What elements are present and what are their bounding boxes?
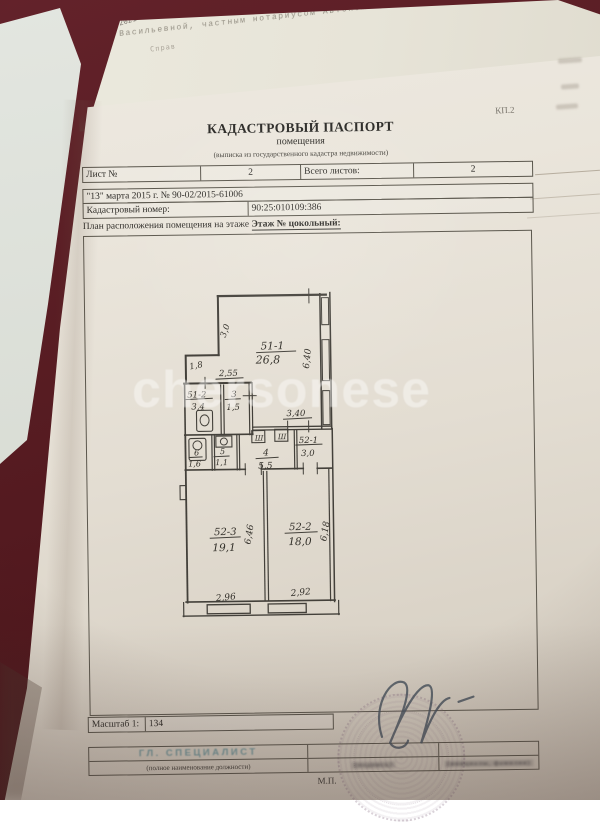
position-note: (полное наименование должности): [146, 762, 250, 771]
wardrobe-mark: Ш: [277, 432, 287, 441]
sheet-label: Лист №: [83, 166, 201, 182]
dim-2-92: 2,92: [289, 587, 311, 599]
room-area-52-2: 18,0: [288, 536, 312, 548]
room-area-52-1: 3,0: [301, 449, 315, 459]
dim-6-46: 6,46: [243, 524, 256, 546]
handwritten-signature: [343, 657, 495, 769]
dim-2-96: 2,96: [214, 592, 236, 604]
room-label-52-3: 52-3: [214, 527, 237, 538]
photo-of-cadastral-passport: { "photo": { "watermark": "chersonese", …: [0, 0, 600, 800]
room-area-6: 1,6: [188, 459, 201, 468]
room-label-4: 4: [262, 448, 269, 458]
cadastral-value: 90:25:010109:386: [249, 201, 325, 216]
dim-6-18: 6,18: [319, 520, 332, 542]
room-label-5: 5: [220, 447, 225, 456]
seal-mark: М.П.: [318, 776, 337, 786]
plan-heading: План расположения помещения на этаже Эта…: [83, 218, 341, 232]
total-sheets-label: Всего листов:: [301, 163, 414, 179]
total-sheets-value: 2: [414, 162, 532, 178]
sheet-number-table: Лист № 2 Всего листов: 2: [82, 161, 533, 183]
scale-label: Масштаб 1:: [89, 717, 146, 732]
room-label-52-2: 52-2: [289, 522, 312, 533]
floor-plan-drawing: 51-1 26,8 6,40 3,0 1,8 2,55 51-2 3,4 3 1…: [84, 231, 538, 715]
room-area-5: 1,1: [215, 458, 228, 467]
floor-plan-frame: 51-1 26,8 6,40 3,0 1,8 2,55 51-2 3,4 3 1…: [83, 230, 539, 716]
room-area-4: 5,5: [258, 461, 273, 471]
wardrobe-mark: Ш: [254, 434, 264, 443]
form-code: КП.2: [495, 105, 515, 116]
photo-watermark: chersonese: [132, 360, 431, 420]
plan-heading-prefix: План расположения помещения на этаже: [83, 220, 249, 232]
scale-row: Масштаб 1: 134: [88, 714, 334, 733]
plan-heading-floor: Этаж № цокольный:: [251, 218, 340, 230]
cadastral-label: Кадастровый номер:: [84, 202, 249, 218]
position-title: ГЛ. СПЕЦИАЛИСТ: [139, 747, 258, 760]
position-note-cell: (полное наименование должности): [89, 759, 308, 775]
scale-value: 134: [146, 717, 166, 731]
sheet-value: 2: [201, 165, 301, 180]
room-area-52-3: 19,1: [212, 542, 236, 554]
room-label-6: 6: [194, 448, 199, 457]
room-label-52-1: 52-1: [299, 436, 318, 446]
dim-3-0: 3,0: [219, 322, 233, 339]
room-label-51-1: 51-1: [260, 340, 284, 352]
